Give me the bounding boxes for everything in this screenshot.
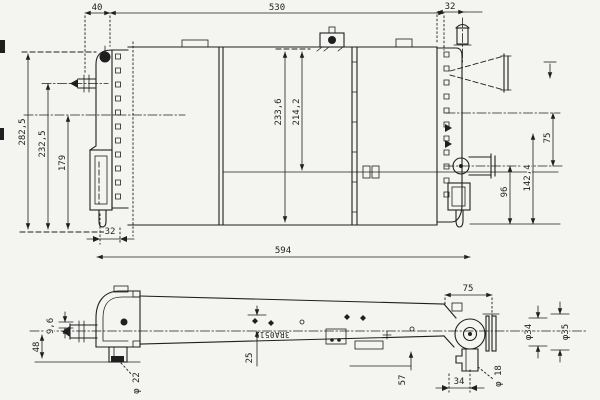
top-pad [396, 39, 412, 47]
left-lower-bracket [90, 150, 112, 227]
flow-arrow [445, 124, 452, 132]
stamped-part-number: 3RA0512 [254, 330, 289, 339]
bolt-head [328, 36, 336, 44]
top-plate [182, 40, 208, 47]
dim-label-32-top: 32 [445, 2, 456, 12]
dim-label-96: 96 [500, 187, 510, 198]
dim-label-48: 48 [32, 342, 42, 353]
dim-label-40: 40 [92, 3, 103, 13]
dim-label-232-5: 232,5 [38, 130, 48, 157]
dim-label-282-5: 282,5 [18, 118, 28, 145]
left-tank-profile [96, 286, 140, 377]
dim-label-phi34: φ34 [524, 324, 534, 340]
front-dimensions: 40 530 32 282,5 232,5 179 233,6 214,2 [18, 2, 562, 257]
top-view: 3RA0512 75 φ34 [30, 284, 588, 394]
left-tank [42, 42, 133, 236]
top-outlet-pipe [454, 18, 471, 62]
dim-label-9-6: 9,6 [46, 318, 56, 334]
dim-label-530: 530 [269, 3, 285, 13]
left-pipe-profile [62, 321, 97, 342]
dim-label-34: 34 [454, 377, 465, 387]
radiator-drawing: 40 530 32 282,5 232,5 179 233,6 214,2 [0, 0, 600, 400]
dim-label-214-2: 214,2 [292, 98, 302, 125]
front-view: 40 530 32 282,5 232,5 179 233,6 214,2 [18, 2, 562, 257]
bolt-head [121, 319, 128, 326]
dim-label-57: 57 [398, 375, 408, 386]
filler-cap [100, 52, 111, 63]
bracket-profile [456, 349, 493, 379]
dim-label-594: 594 [275, 246, 291, 256]
upper-hose-connection [450, 54, 511, 92]
radiator-core [128, 27, 558, 225]
dim-label-75-top: 75 [463, 284, 474, 294]
dim-label-142-4: 142,4 [523, 164, 533, 191]
dim-label-233-6: 233,6 [274, 98, 284, 125]
scan-smudges [0, 40, 5, 140]
dim-label-179: 179 [58, 155, 68, 171]
dim-label-phi35: φ35 [561, 324, 571, 340]
top-mounting-bracket [317, 27, 344, 51]
body-profile: 3RA0512 [140, 296, 444, 349]
left-pipe-stub [42, 75, 108, 92]
dim-label-25: 25 [245, 353, 255, 364]
dim-label-phi22: φ 22 [132, 372, 142, 394]
dim-label-32-bottom: 32 [105, 227, 116, 237]
clip-row [116, 54, 121, 199]
right-lower-bracket [448, 183, 470, 227]
mounting-pin [456, 210, 463, 227]
clip-row [444, 52, 449, 197]
right-connection-profile [444, 303, 499, 379]
drawing-sheet: 40 530 32 282,5 232,5 179 233,6 214,2 [0, 0, 600, 400]
dim-label-75-right: 75 [543, 133, 553, 144]
dim-label-phi18: φ 18 [494, 365, 504, 387]
